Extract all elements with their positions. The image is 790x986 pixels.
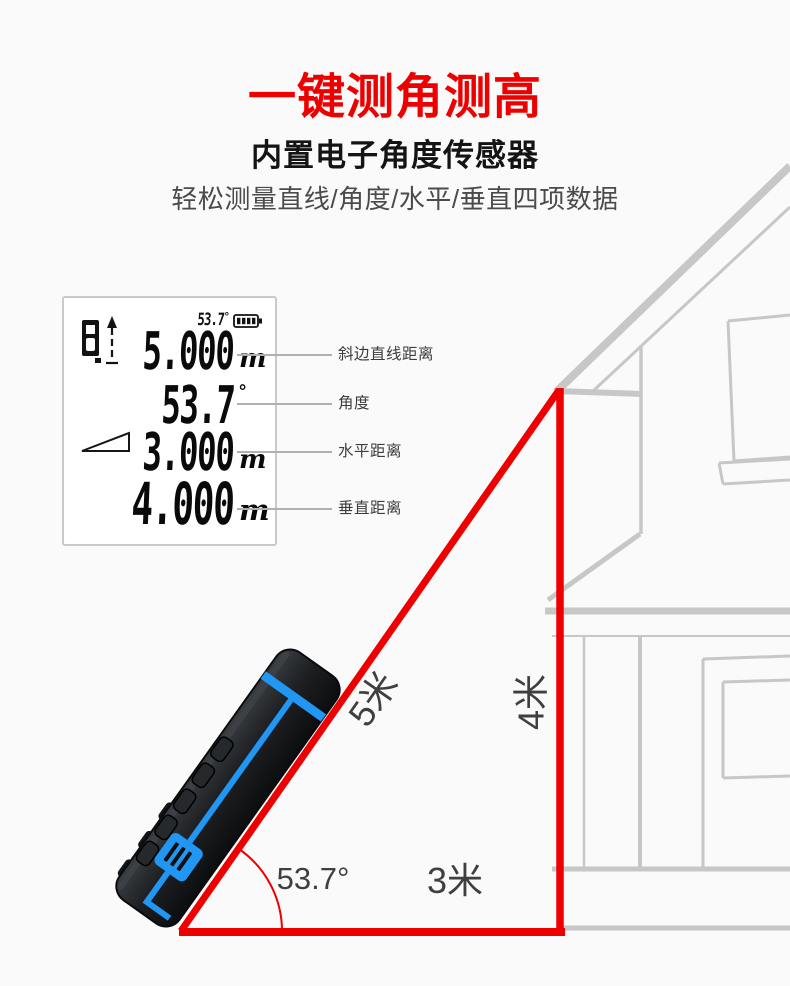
status-degree-symbol: ° [225,311,229,323]
angle-arc [239,849,282,931]
horizontal-length-label: 3米 [427,860,483,901]
product-banner: 5米 4米 3米 53.7° 一键测角测高 内置电子角度传感器 轻松测量直线/角… [0,0,790,986]
page-title: 一键测角测高 [0,72,790,125]
angle-unit: ° [239,382,261,400]
vertical-distance-unit: m [239,496,261,525]
callout-line-hypotenuse [237,354,332,356]
angle-triangle-icon [80,428,132,454]
lcd-row-hypotenuse: 5.000 m [86,332,261,374]
label-angle: 角度 [338,395,370,413]
callout-line-vertical [237,508,332,510]
hypotenuse-distance-unit: m [239,346,261,372]
vertical-length-label: 4米 [511,674,552,730]
label-vertical-distance: 垂直距离 [338,500,402,518]
hypotenuse-length-label: 5米 [340,664,406,733]
house-outline-drawing [545,166,790,928]
lcd-row-angle: 53.7 ° [116,386,261,428]
callout-line-horizontal [237,451,332,453]
horizontal-distance-value: 3.000 [142,433,235,475]
angle-value-label: 53.7° [277,861,350,896]
lcd-row-vertical: 4.000 m [68,481,261,527]
page-subtitle: 内置电子角度传感器 [0,139,790,173]
angle-value: 53.7 [160,386,234,428]
battery-full-icon [233,313,263,329]
page-tagline: 轻松测量直线/角度/水平/垂直四项数据 [0,185,790,214]
label-hypotenuse-distance: 斜边直线距离 [338,346,434,364]
vertical-distance-value: 4.000 [131,481,235,527]
callout-line-angle [237,403,332,405]
label-horizontal-distance: 水平距离 [338,443,402,461]
hypotenuse-distance-value: 5.000 [142,332,235,374]
